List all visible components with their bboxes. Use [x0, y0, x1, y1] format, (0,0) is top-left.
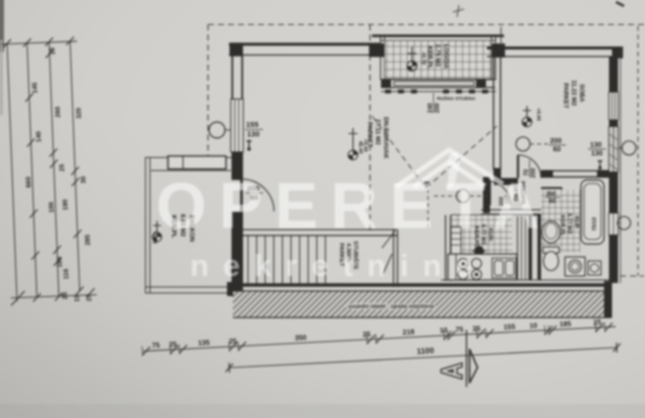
svg-text:200: 200	[550, 138, 562, 145]
svg-text:25: 25	[86, 294, 93, 302]
svg-text:+0.72: +0.72	[420, 52, 426, 65]
svg-text:25: 25	[59, 164, 66, 172]
svg-text:260: 260	[55, 106, 62, 118]
svg-text:25: 25	[169, 341, 177, 348]
svg-text:218: 218	[403, 329, 415, 337]
svg-text:285: 285	[84, 234, 91, 246]
svg-text:25: 25	[229, 338, 237, 345]
svg-text:185: 185	[56, 256, 63, 268]
svg-text:200: 200	[435, 102, 441, 113]
svg-text:25: 25	[49, 47, 56, 55]
svg-text:2.75 M2: 2.75 M2	[434, 44, 441, 67]
svg-text:60: 60	[553, 147, 561, 154]
svg-text:PARKET: PARKET	[562, 83, 569, 109]
svg-text:KUP.: KUP.	[573, 216, 579, 229]
svg-text:25: 25	[472, 326, 480, 333]
svg-text:100: 100	[48, 201, 55, 213]
svg-text:10: 10	[529, 323, 537, 330]
svg-text:155: 155	[503, 324, 515, 332]
svg-text:19: 19	[74, 294, 81, 302]
svg-text:11.22 M2: 11.22 M2	[570, 80, 577, 106]
svg-text:155: 155	[246, 120, 259, 129]
svg-text:25: 25	[363, 331, 371, 338]
svg-text:KER.PL: KER.PL	[426, 46, 433, 69]
svg-text:27.11 M2: 27.11 M2	[374, 119, 381, 145]
svg-text:350: 350	[295, 335, 307, 343]
svg-text:OPERETA: OPERETA	[156, 169, 552, 242]
svg-text:145: 145	[32, 82, 39, 94]
svg-text:45.44: 45.44	[357, 141, 363, 154]
svg-text:75: 75	[152, 342, 160, 349]
svg-text:130: 130	[247, 130, 260, 139]
svg-text:116: 116	[63, 268, 70, 279]
svg-text:SOBA: SOBA	[578, 84, 585, 103]
svg-text:660: 660	[25, 176, 32, 188]
svg-text:nekretnine: nekretnine	[190, 248, 487, 283]
svg-text:30: 30	[80, 176, 87, 184]
svg-text:4.77 M2: 4.77 M2	[566, 213, 572, 234]
svg-text:LOGGIA: LOGGIA	[442, 44, 449, 69]
svg-text:75: 75	[455, 327, 463, 334]
svg-text:+4.44: +4.44	[535, 108, 541, 121]
svg-text:185: 185	[559, 321, 571, 329]
svg-text:25: 25	[62, 292, 69, 300]
svg-text:130: 130	[591, 151, 603, 158]
svg-text:130: 130	[590, 142, 602, 149]
svg-text:KER.PL: KER.PL	[559, 215, 565, 237]
svg-text:70/10: 70/10	[592, 217, 598, 231]
svg-text:140: 140	[35, 131, 42, 143]
svg-text:240: 240	[428, 102, 434, 113]
svg-text:190: 190	[62, 199, 69, 211]
svg-text:susjedni objekt : zgrada smje: susjedni objekt : zgrada smještena	[348, 304, 434, 310]
svg-text:1100: 1100	[416, 346, 434, 356]
svg-text:DN.BORAVAK: DN.BORAVAK	[382, 117, 389, 159]
svg-text:10: 10	[440, 327, 448, 334]
svg-text:25: 25	[593, 319, 601, 326]
svg-text:135: 135	[198, 340, 210, 348]
svg-text:320: 320	[76, 107, 83, 119]
